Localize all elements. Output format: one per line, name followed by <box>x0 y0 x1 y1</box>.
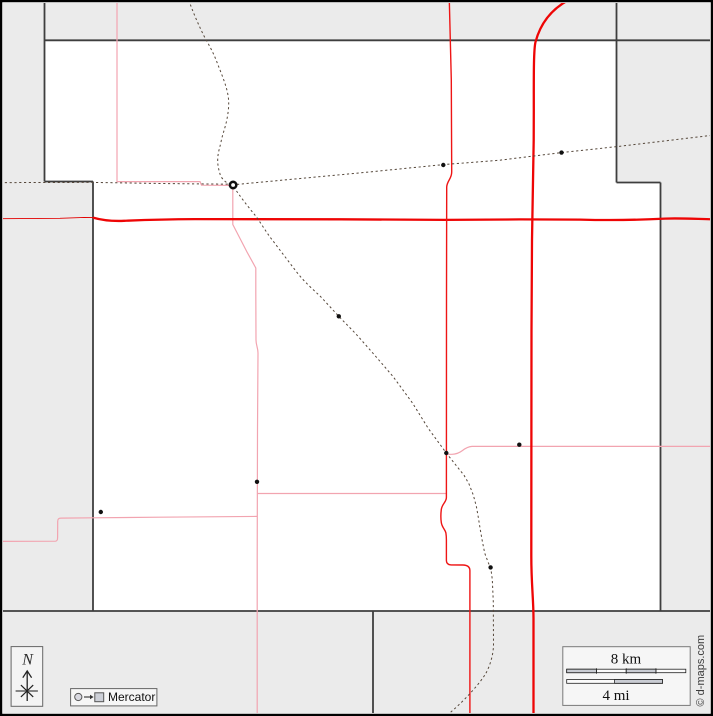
svg-text:© d-maps.com: © d-maps.com <box>695 635 707 707</box>
svg-text:N: N <box>21 652 34 669</box>
svg-text:4 mi: 4 mi <box>602 688 629 704</box>
svg-text:8 km: 8 km <box>611 652 642 668</box>
svg-text:Mercator: Mercator <box>108 690 155 704</box>
